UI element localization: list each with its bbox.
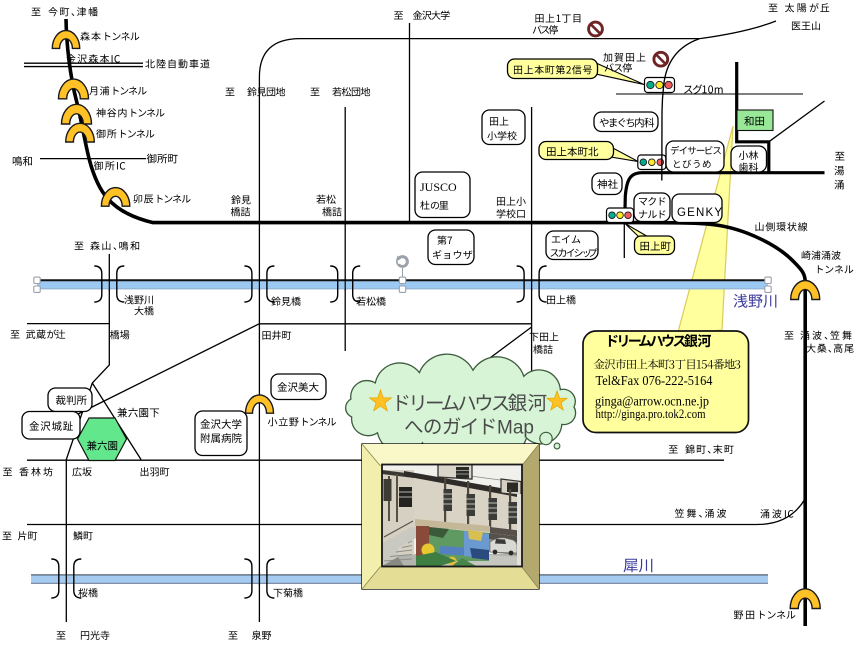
svg-text:JUSCO: JUSCO (420, 180, 457, 194)
svg-text:Tel&Fax 076-222-5164: Tel&Fax 076-222-5164 (596, 374, 713, 389)
svg-text:Map: Map (497, 418, 534, 439)
svg-text:http://ginga.pro.tok2.com: http://ginga.pro.tok2.com (596, 407, 706, 421)
svg-text:GENKY: GENKY (677, 207, 723, 219)
